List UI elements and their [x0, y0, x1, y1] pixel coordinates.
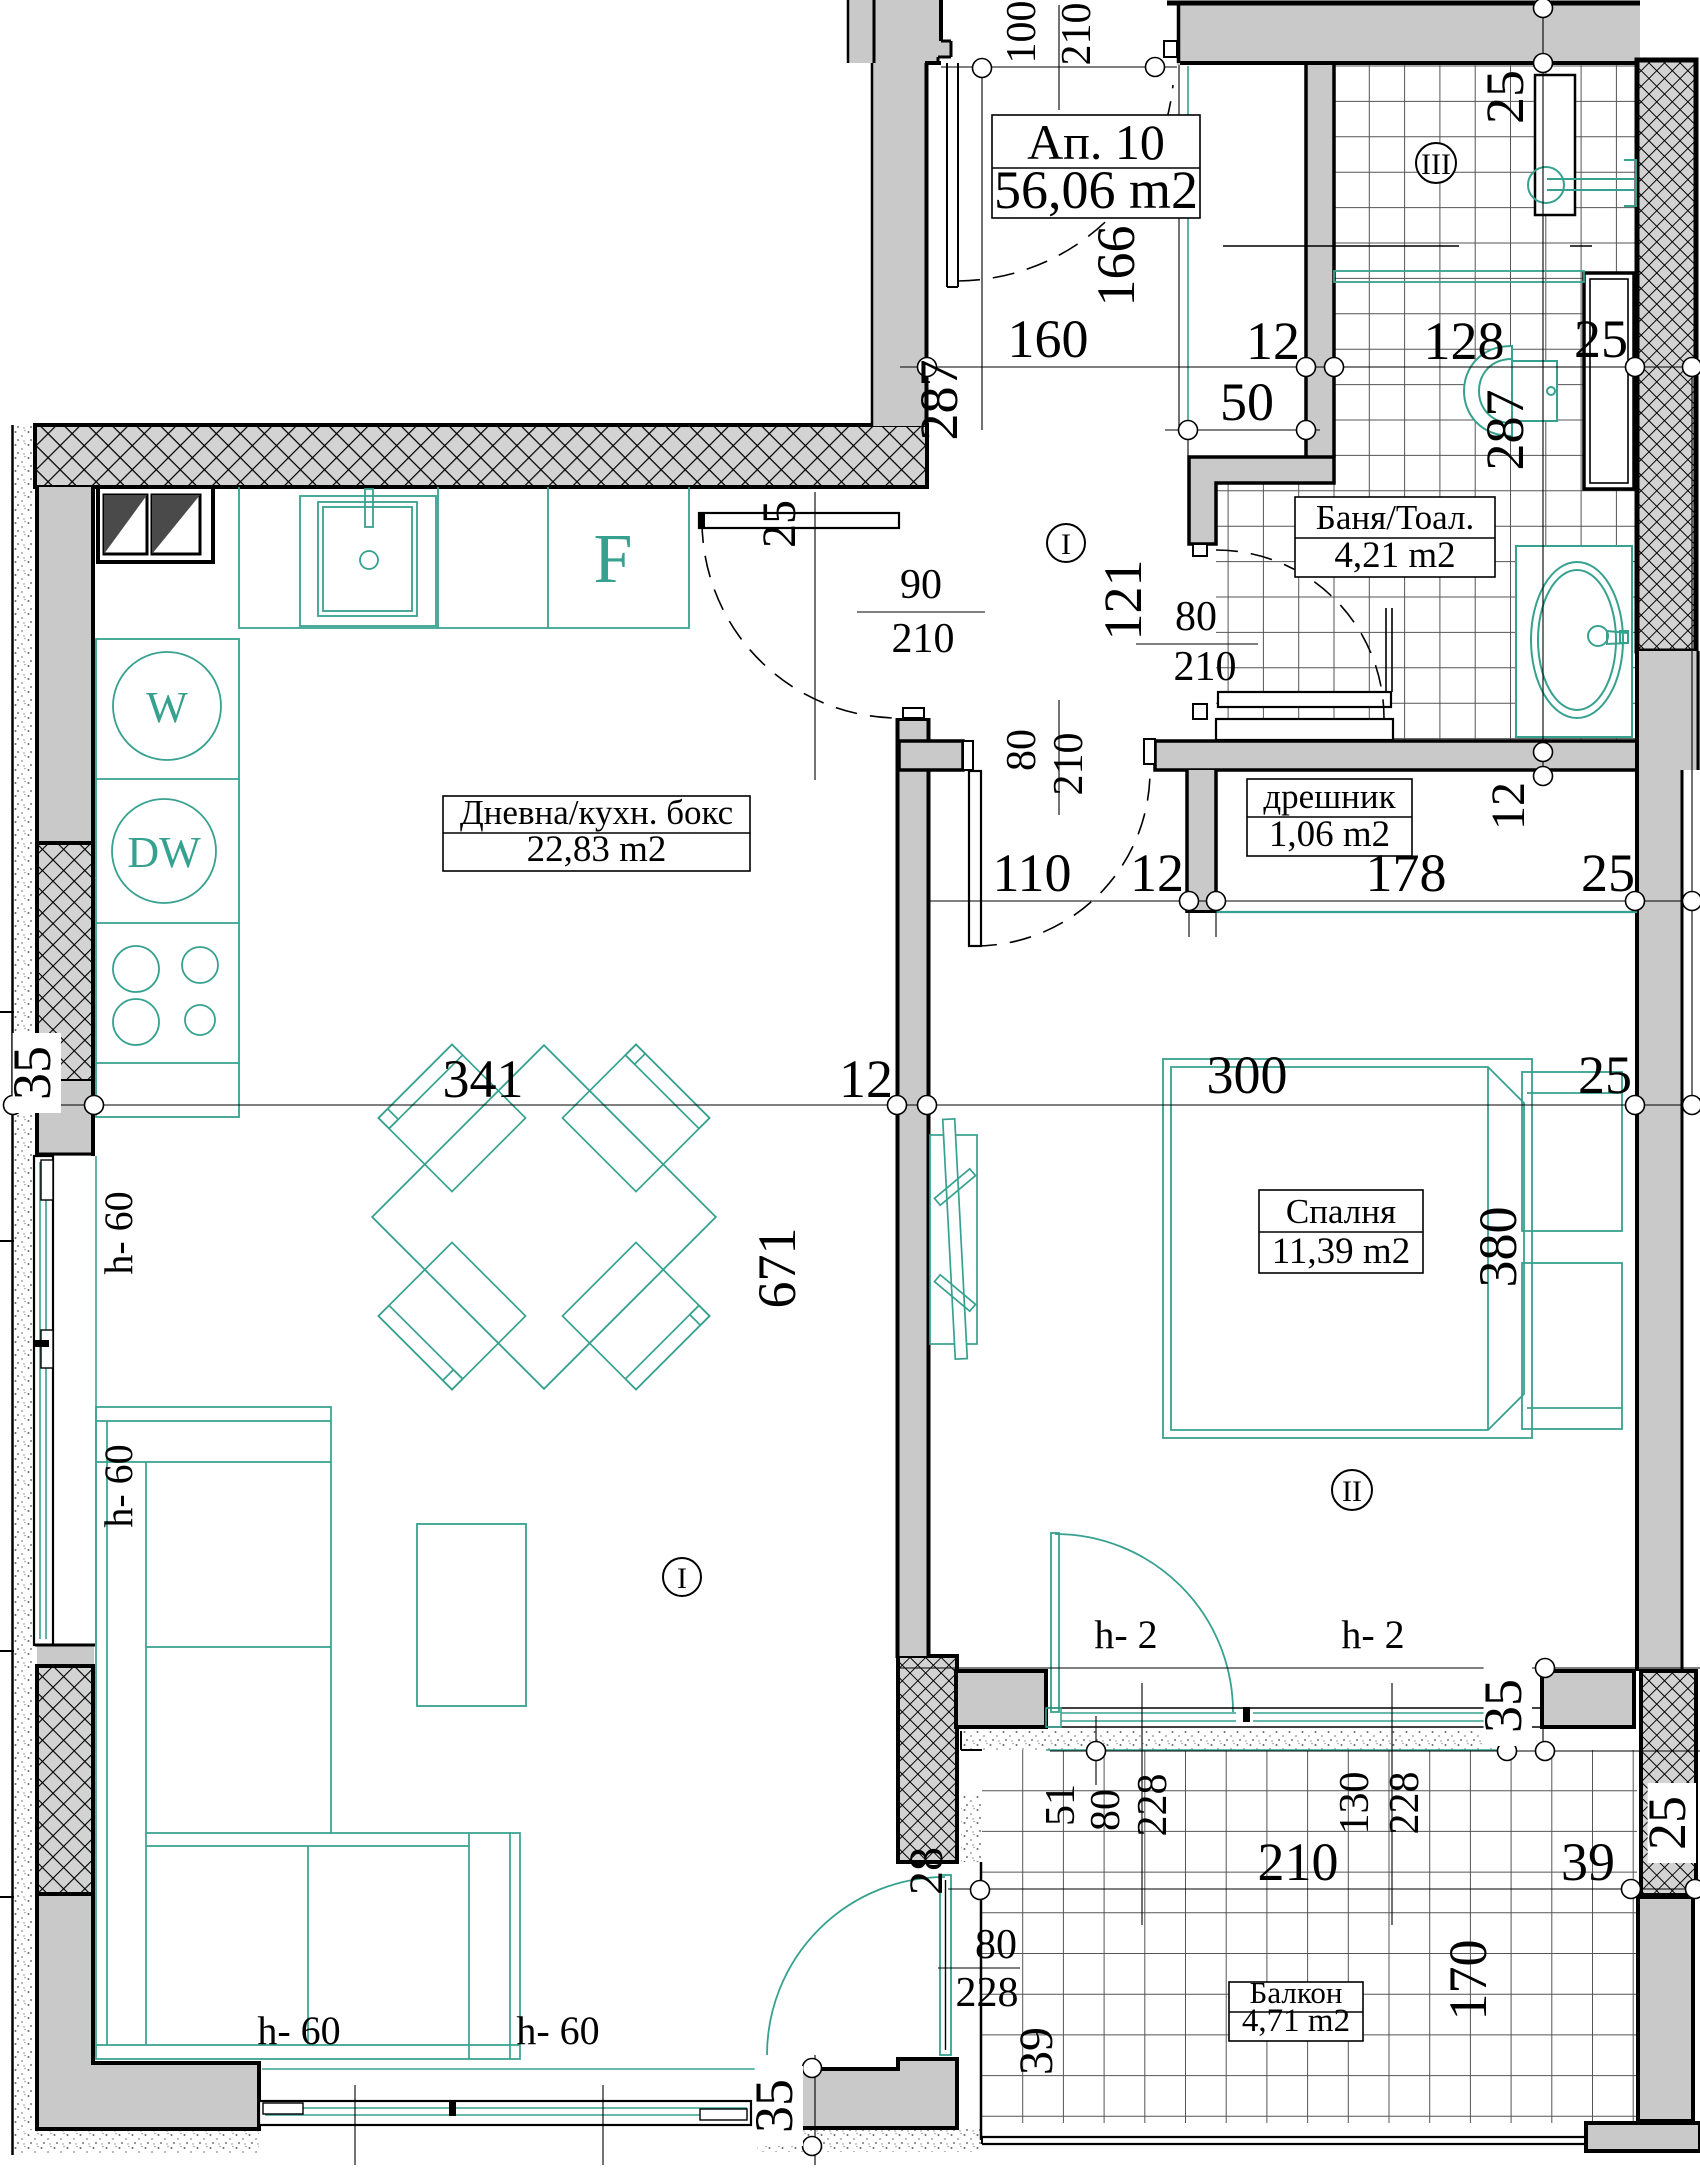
- svg-text:28: 28: [900, 1847, 953, 1895]
- svg-text:W: W: [146, 683, 188, 732]
- svg-text:Дневна/кухн. бокс: Дневна/кухн. бокс: [460, 793, 733, 832]
- svg-text:12: 12: [1482, 782, 1535, 830]
- svg-text:380: 380: [1468, 1207, 1528, 1288]
- svg-text:130: 130: [1332, 1772, 1378, 1835]
- svg-text:160: 160: [1008, 309, 1089, 369]
- svg-text:56,06 m2: 56,06 m2: [994, 160, 1198, 220]
- svg-text:90: 90: [900, 562, 942, 608]
- svg-text:I: I: [677, 1562, 687, 1595]
- svg-text:25: 25: [1475, 70, 1535, 124]
- svg-text:287: 287: [1475, 390, 1535, 471]
- svg-text:h- 60: h- 60: [257, 2008, 340, 2053]
- svg-text:12: 12: [1130, 843, 1184, 903]
- svg-text:35: 35: [2, 1046, 62, 1100]
- svg-text:121: 121: [1093, 560, 1153, 641]
- svg-text:h- 60: h- 60: [96, 1444, 141, 1527]
- svg-text:210: 210: [1258, 1832, 1339, 1892]
- svg-text:4,21 m2: 4,21 m2: [1334, 535, 1455, 576]
- svg-text:Спалня: Спалня: [1286, 1192, 1396, 1231]
- svg-text:25: 25: [1574, 309, 1628, 369]
- svg-text:Баня/Тоал.: Баня/Тоал.: [1316, 498, 1475, 537]
- svg-text:II: II: [1342, 1475, 1362, 1508]
- svg-text:210: 210: [892, 616, 955, 662]
- svg-text:h- 60: h- 60: [516, 2008, 599, 2053]
- svg-text:80: 80: [1083, 1789, 1129, 1831]
- svg-text:дрешник: дрешник: [1263, 777, 1396, 816]
- svg-text:DW: DW: [127, 828, 201, 877]
- svg-text:35: 35: [744, 2079, 804, 2133]
- svg-text:228: 228: [956, 1970, 1019, 2016]
- svg-text:25: 25: [1637, 1796, 1697, 1850]
- svg-text:50: 50: [1220, 372, 1274, 432]
- svg-text:170: 170: [1438, 1940, 1498, 2021]
- svg-text:80: 80: [975, 1922, 1017, 1968]
- svg-text:166: 166: [1086, 226, 1146, 307]
- svg-text:35: 35: [1473, 1679, 1533, 1733]
- svg-text:300: 300: [1207, 1045, 1288, 1105]
- svg-text:39: 39: [1010, 2027, 1063, 2075]
- svg-text:341: 341: [443, 1049, 524, 1109]
- svg-text:25: 25: [1578, 1045, 1632, 1105]
- svg-text:h- 2: h- 2: [1341, 1612, 1404, 1657]
- svg-text:I: I: [1061, 528, 1071, 561]
- svg-text:39: 39: [1561, 1832, 1615, 1892]
- svg-text:228: 228: [1382, 1772, 1428, 1835]
- svg-text:110: 110: [993, 843, 1072, 903]
- svg-text:12: 12: [1246, 311, 1300, 371]
- svg-text:h- 2: h- 2: [1094, 1612, 1157, 1657]
- svg-text:210: 210: [1054, 3, 1100, 66]
- svg-text:III: III: [1421, 148, 1451, 181]
- svg-text:12: 12: [839, 1049, 893, 1109]
- svg-text:h- 60: h- 60: [96, 1191, 141, 1274]
- svg-text:210: 210: [1174, 644, 1237, 690]
- svg-text:F: F: [594, 521, 633, 598]
- svg-text:210: 210: [1046, 733, 1092, 796]
- svg-text:11,39 m2: 11,39 m2: [1272, 1231, 1410, 1272]
- svg-text:287: 287: [909, 360, 969, 441]
- svg-text:128: 128: [1424, 311, 1505, 371]
- svg-text:4,71 m2: 4,71 m2: [1242, 2003, 1350, 2039]
- svg-text:671: 671: [747, 1228, 807, 1309]
- svg-text:228: 228: [1130, 1774, 1176, 1837]
- svg-text:100: 100: [999, 1, 1045, 64]
- svg-text:178: 178: [1366, 843, 1447, 903]
- svg-text:80: 80: [999, 729, 1045, 771]
- svg-text:80: 80: [1175, 594, 1217, 640]
- svg-text:22,83 m2: 22,83 m2: [527, 829, 667, 870]
- svg-text:25: 25: [1581, 843, 1635, 903]
- svg-text:51: 51: [1038, 1784, 1084, 1826]
- svg-text:25: 25: [753, 500, 806, 548]
